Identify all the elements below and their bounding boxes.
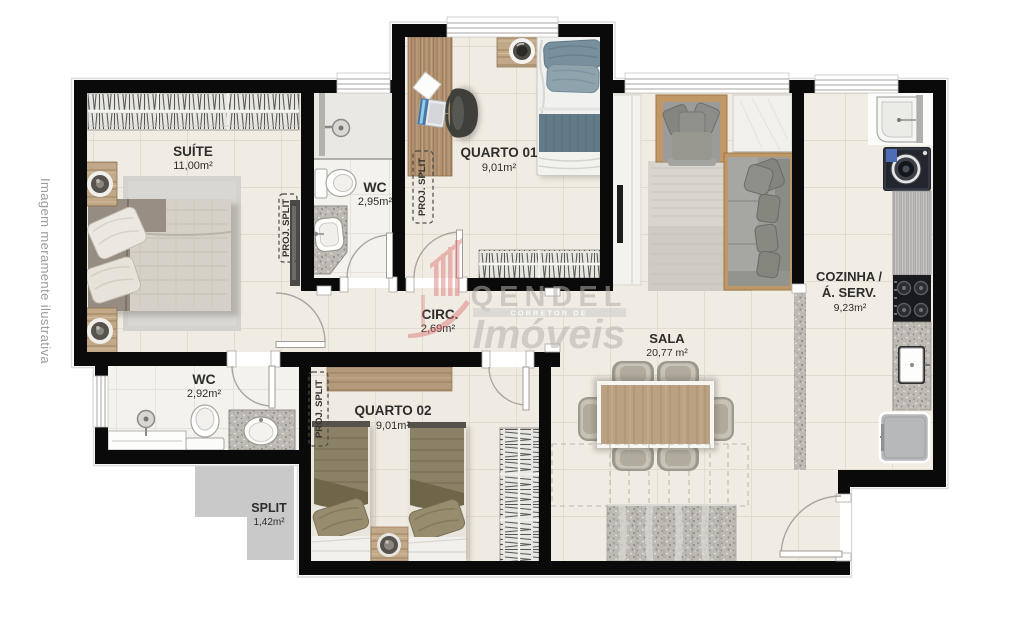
svg-text:QUARTO 02: QUARTO 02 [354,403,431,418]
svg-text:WC: WC [363,179,386,195]
svg-text:PROJ. SPLIT: PROJ. SPLIT [314,380,325,438]
svg-text:1,42m²: 1,42m² [253,517,285,528]
svg-text:QUARTO 01: QUARTO 01 [460,145,538,160]
svg-text:SUÍTE: SUÍTE [173,144,213,159]
svg-text:9,01m²: 9,01m² [482,162,517,174]
svg-text:20,77 m²: 20,77 m² [646,347,688,359]
svg-text:9,23m²: 9,23m² [834,302,867,314]
svg-text:9,01m²: 9,01m² [376,420,411,432]
svg-text:WC: WC [192,371,215,387]
svg-text:Imagem meramente ilustrativa: Imagem meramente ilustrativa [38,178,53,364]
svg-text:2,95m²: 2,95m² [358,196,393,208]
svg-text:PROJ. SPLIT: PROJ. SPLIT [417,158,428,216]
svg-text:SPLIT: SPLIT [251,501,287,515]
svg-text:Á. SERV.: Á. SERV. [822,285,876,300]
svg-text:2,92m²: 2,92m² [187,388,222,400]
svg-text:Imóveis: Imóveis [473,311,626,357]
svg-text:11,00m²: 11,00m² [173,160,213,172]
svg-text:SALA: SALA [649,331,685,346]
svg-text:PROJ. SPLIT: PROJ. SPLIT [281,199,292,257]
svg-text:COZINHA /: COZINHA / [816,269,882,284]
